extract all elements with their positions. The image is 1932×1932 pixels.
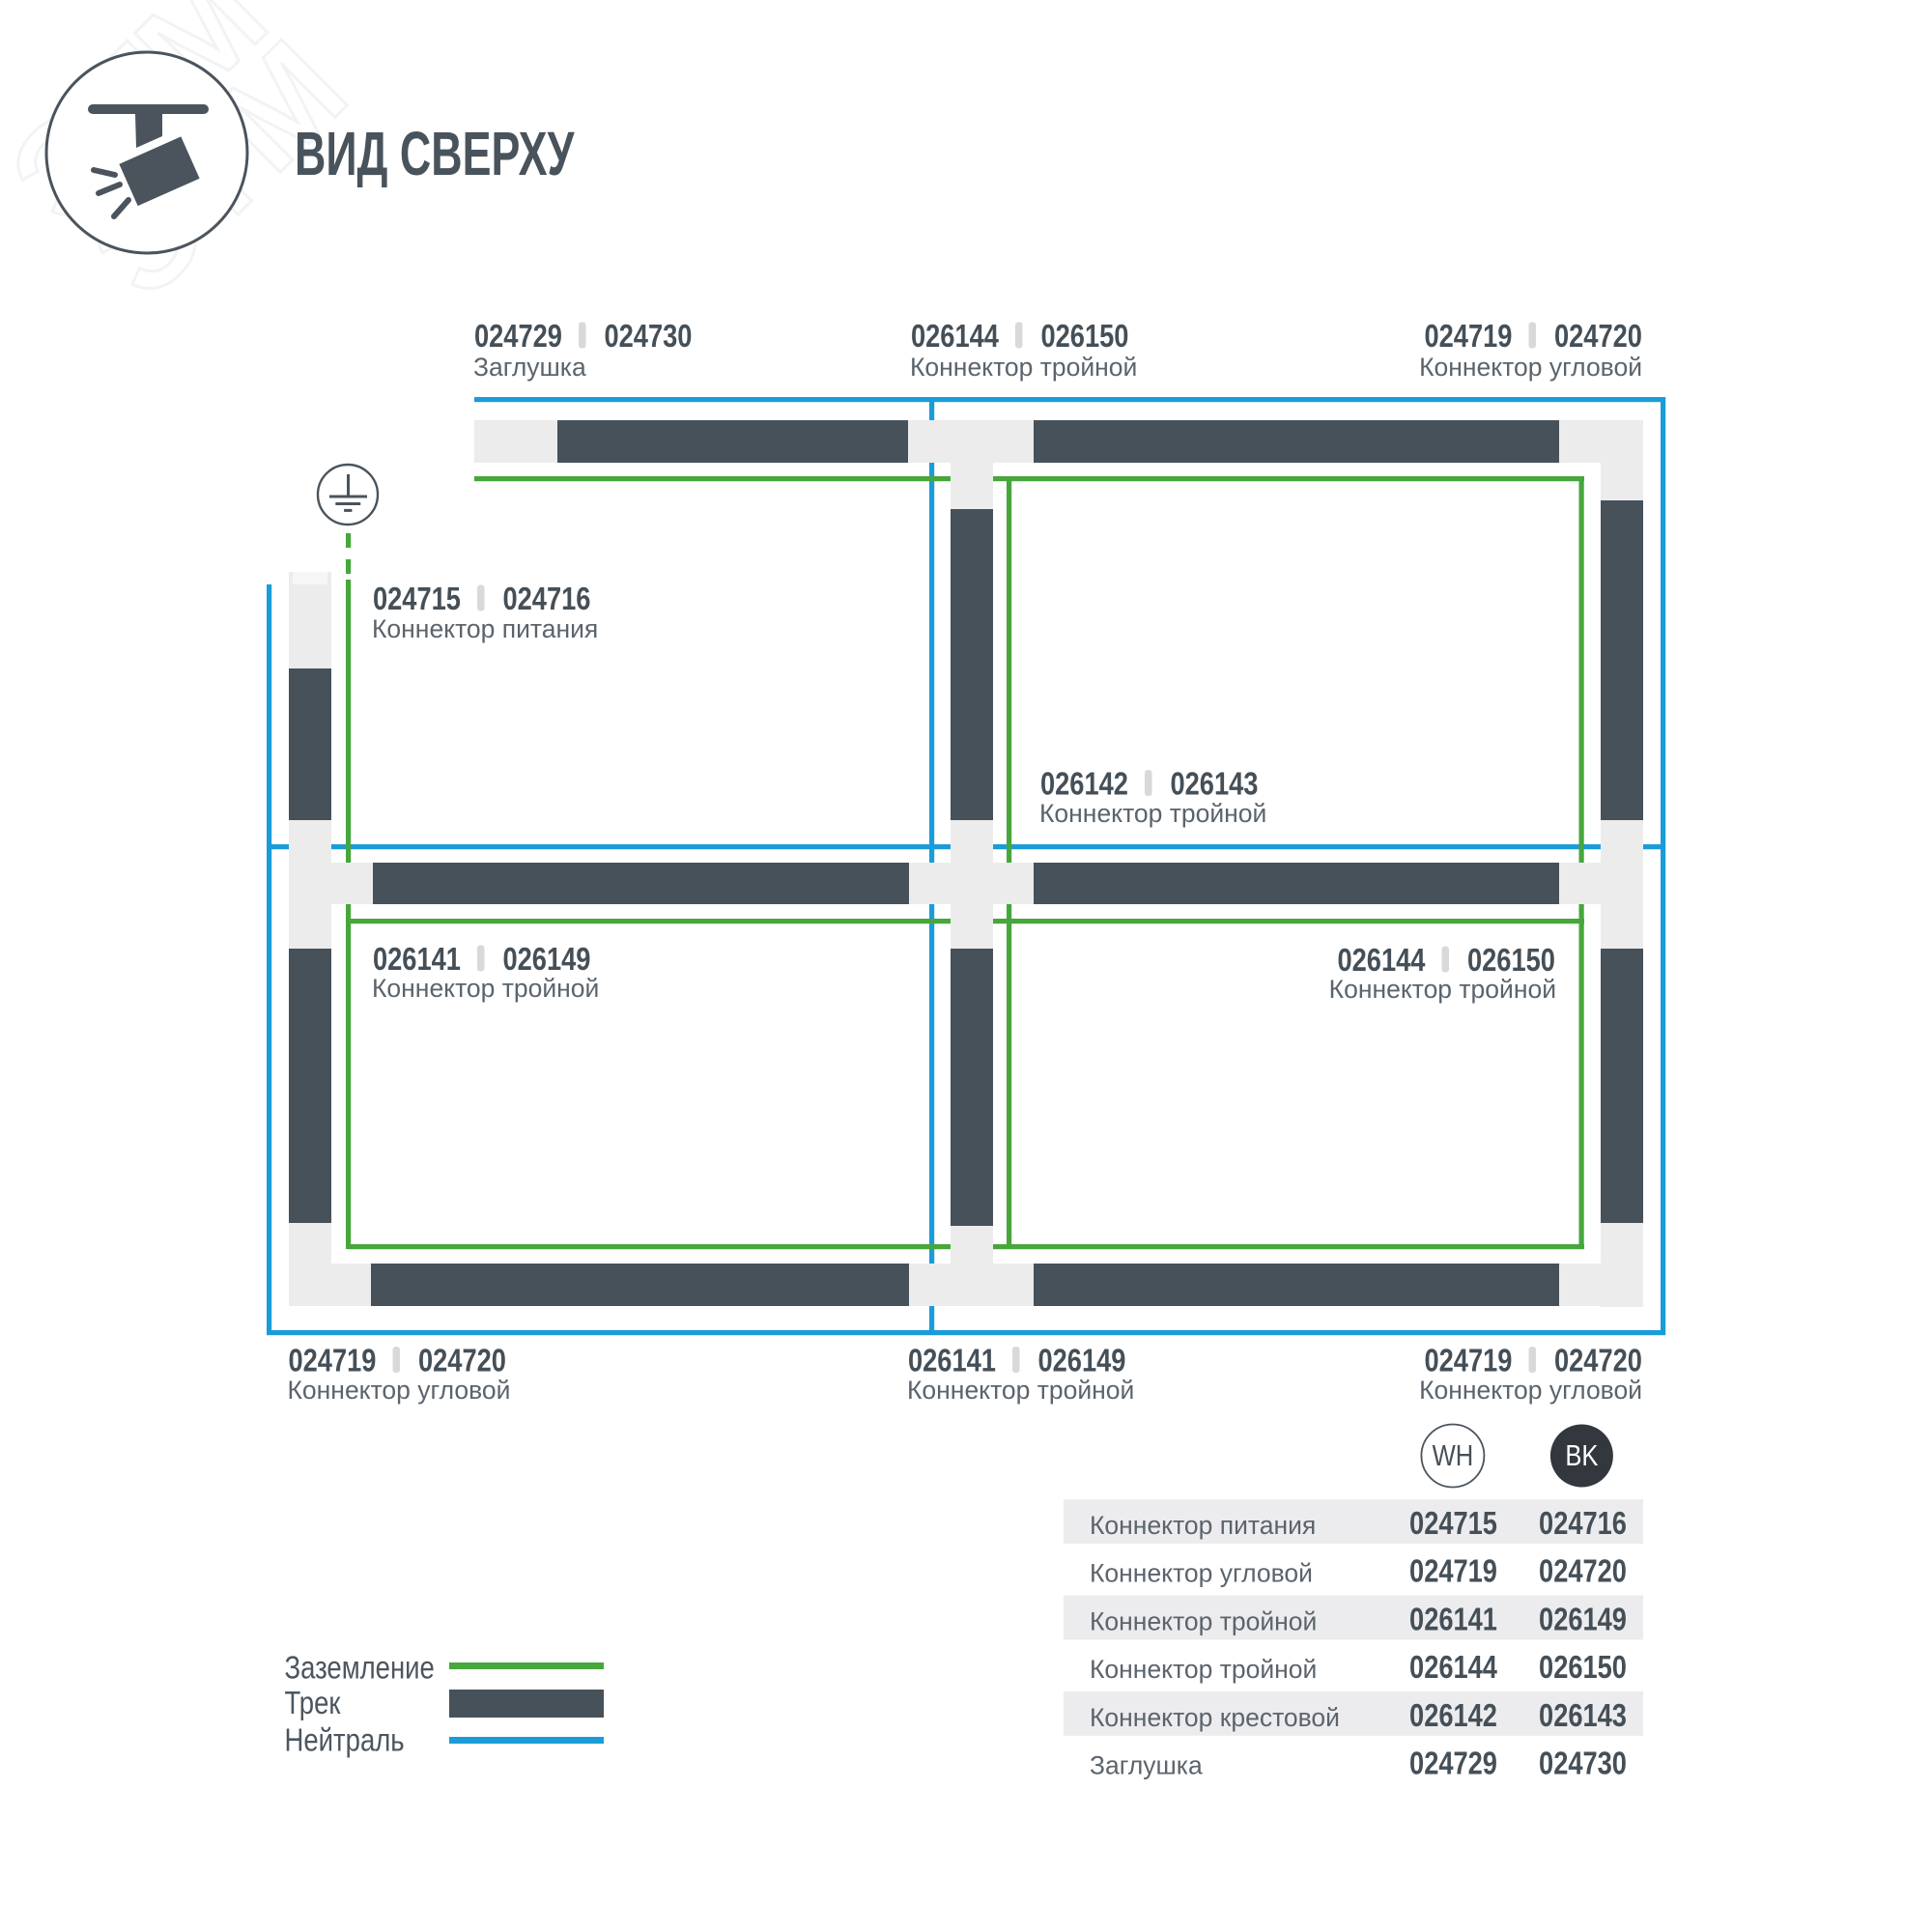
- svg-text:026141: 026141: [1409, 1603, 1497, 1637]
- svg-text:Коннектор крестовой: Коннектор крестовой: [1090, 1703, 1340, 1732]
- svg-text:024719: 024719: [289, 1344, 377, 1378]
- svg-text:026142: 026142: [1040, 767, 1128, 802]
- svg-text:026149: 026149: [1539, 1603, 1627, 1637]
- svg-text:026143: 026143: [1171, 767, 1259, 802]
- svg-text:026141: 026141: [908, 1344, 996, 1378]
- svg-text:Заземление: Заземление: [285, 1650, 435, 1686]
- svg-text:Коннектор угловой: Коннектор угловой: [288, 1376, 511, 1405]
- svg-text:024720: 024720: [1554, 320, 1642, 355]
- svg-text:Коннектор питания: Коннектор питания: [1090, 1511, 1316, 1540]
- svg-text:024730: 024730: [605, 320, 693, 355]
- svg-text:026149: 026149: [503, 943, 591, 978]
- svg-text:026142: 026142: [1409, 1698, 1497, 1733]
- svg-text:024719: 024719: [1425, 1344, 1513, 1378]
- svg-text:Коннектор питания: Коннектор питания: [372, 614, 598, 643]
- svg-text:024715: 024715: [1409, 1507, 1497, 1542]
- svg-text:026150: 026150: [1539, 1651, 1627, 1686]
- svg-text:024720: 024720: [1539, 1554, 1627, 1589]
- svg-text:Коннектор тройной: Коннектор тройной: [1090, 1655, 1317, 1684]
- svg-text:026143: 026143: [1539, 1698, 1627, 1733]
- svg-text:024715: 024715: [373, 582, 461, 617]
- svg-text:026144: 026144: [911, 320, 999, 355]
- svg-text:Нейтраль: Нейтраль: [285, 1722, 405, 1758]
- svg-text:Заглушка: Заглушка: [473, 353, 586, 382]
- svg-text:Коннектор угловой: Коннектор угловой: [1419, 353, 1642, 382]
- svg-text:Трек: Трек: [285, 1686, 342, 1721]
- svg-text:ВИД СВЕРХУ: ВИД СВЕРХУ: [295, 119, 575, 188]
- svg-text:026141: 026141: [373, 943, 461, 978]
- svg-text:BK: BK: [1565, 1439, 1598, 1473]
- svg-text:024719: 024719: [1425, 320, 1513, 355]
- svg-text:024730: 024730: [1539, 1747, 1627, 1781]
- svg-text:024716: 024716: [503, 582, 591, 617]
- svg-text:Коннектор тройной: Коннектор тройной: [1329, 975, 1556, 1004]
- svg-text:Коннектор угловой: Коннектор угловой: [1090, 1559, 1313, 1588]
- svg-text:026144: 026144: [1409, 1651, 1497, 1686]
- svg-text:024729: 024729: [474, 320, 562, 355]
- svg-text:Коннектор тройной: Коннектор тройной: [910, 353, 1137, 382]
- svg-text:WH: WH: [1433, 1439, 1474, 1473]
- svg-text:Коннектор тройной: Коннектор тройной: [1090, 1606, 1317, 1635]
- svg-text:024720: 024720: [418, 1344, 506, 1378]
- svg-text:Коннектор тройной: Коннектор тройной: [907, 1376, 1134, 1405]
- svg-text:Заглушка: Заглушка: [1090, 1751, 1203, 1780]
- svg-text:Коннектор тройной: Коннектор тройной: [1039, 799, 1266, 828]
- svg-text:026150: 026150: [1041, 320, 1129, 355]
- svg-text:024716: 024716: [1539, 1507, 1627, 1542]
- svg-text:026149: 026149: [1038, 1344, 1126, 1378]
- svg-text:Коннектор тройной: Коннектор тройной: [372, 974, 599, 1003]
- svg-text:Коннектор угловой: Коннектор угловой: [1419, 1376, 1642, 1405]
- svg-text:026144: 026144: [1338, 944, 1426, 979]
- svg-text:026150: 026150: [1467, 944, 1555, 979]
- svg-text:024729: 024729: [1409, 1747, 1497, 1781]
- svg-text:024720: 024720: [1554, 1344, 1642, 1378]
- svg-text:024719: 024719: [1409, 1554, 1497, 1589]
